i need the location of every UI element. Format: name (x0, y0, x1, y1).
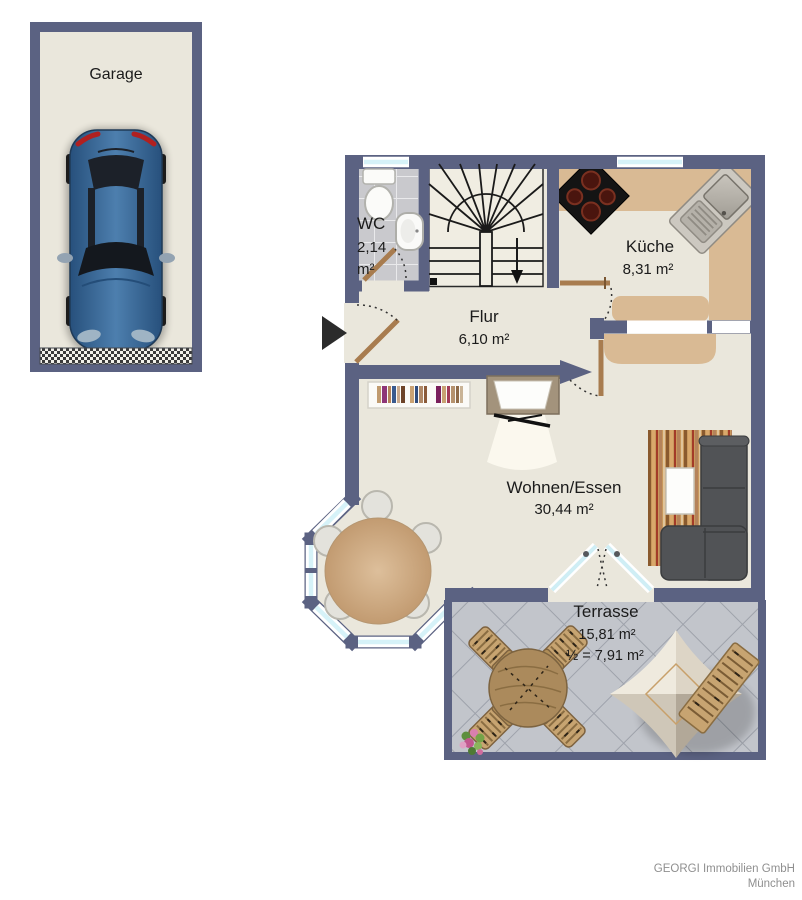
bookshelf (368, 382, 470, 408)
terrasse-area-half: ½ = 7,91 m² (566, 648, 644, 664)
dining-chair (362, 491, 392, 521)
serving-hatch-opening (627, 321, 707, 334)
terrasse-area: 15,81 m² (578, 627, 635, 643)
car-rear-window (88, 155, 144, 190)
wohnen-area: 30,44 m² (534, 501, 593, 518)
kueche-label: Küche (626, 237, 674, 256)
wall-post (590, 318, 604, 339)
car (57, 128, 175, 356)
credit-company: GEORGI Immobilien GmbH (654, 863, 795, 875)
serving-hatch-opening-2 (712, 321, 750, 333)
stair-start-dot (430, 278, 437, 285)
terrace-door-opening (548, 588, 654, 602)
terrasse-label: Terrasse (573, 602, 638, 621)
wc-door-opening (362, 281, 404, 292)
wc-area-2: m² (357, 261, 375, 278)
wohnen-label: Wohnen/Essen (507, 478, 622, 497)
car-mirror-left (57, 253, 73, 263)
wc-area-1: 2,14 (357, 239, 386, 256)
wc-label: WC (357, 214, 385, 233)
credit-city: München (748, 878, 795, 890)
terrace (444, 600, 766, 760)
car-mirror-right (159, 253, 175, 263)
kueche-area: 8,31 m² (623, 261, 674, 278)
dining-table (325, 518, 431, 624)
breakfast-bar-counter (604, 334, 716, 364)
flur-label: Flur (469, 307, 499, 326)
floorplan-page: Garage WC 2,14 m² Küche 8,31 m² Flur 6,1… (0, 0, 802, 900)
coffee-table (666, 468, 694, 514)
toilet-tank (363, 169, 395, 184)
garage-label: Garage (89, 66, 142, 83)
garage-door (40, 348, 192, 364)
floorplan-canvas: Garage WC 2,14 m² Küche 8,31 m² Flur 6,1… (0, 0, 802, 900)
flur-area: 6,10 m² (459, 331, 510, 348)
stair-spine (480, 232, 492, 286)
entrance-arrow-icon (322, 316, 347, 350)
